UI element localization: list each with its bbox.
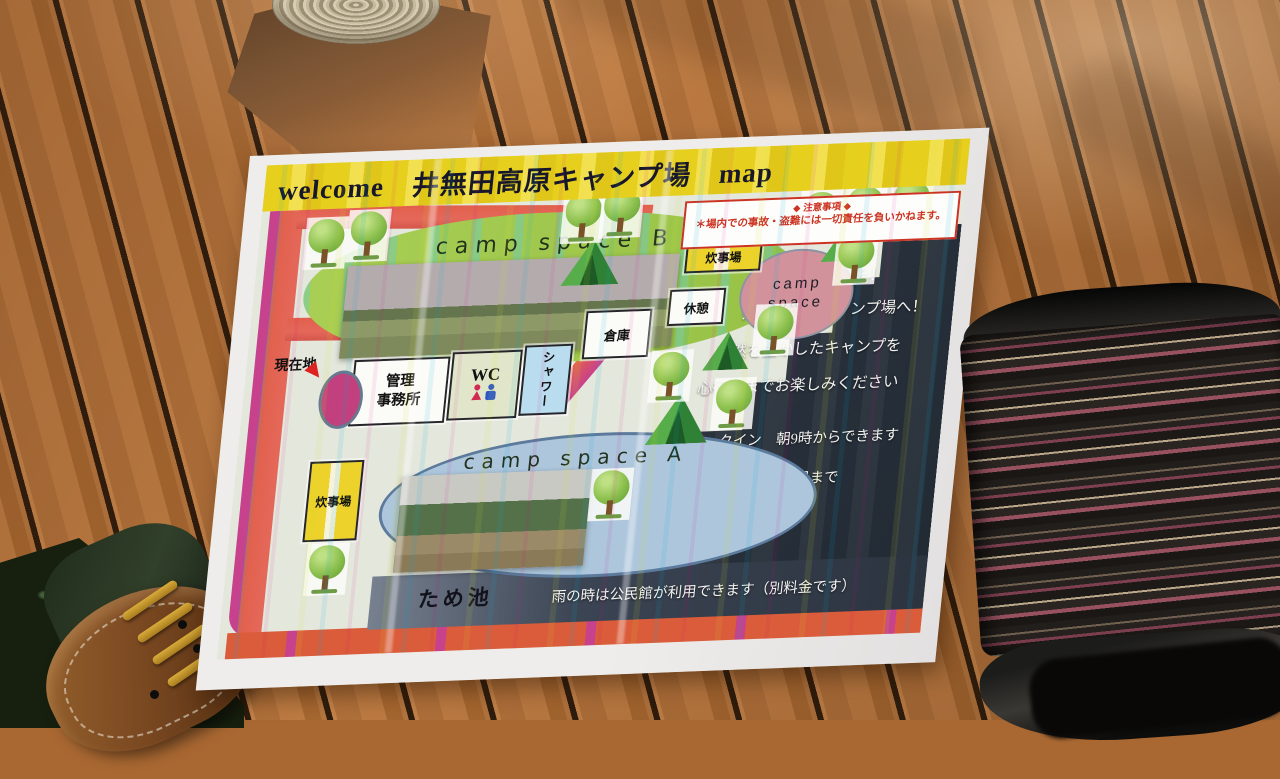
tree-icon xyxy=(647,349,694,403)
warehouse-box: 倉庫 xyxy=(582,309,653,360)
camp-space-a-photo xyxy=(393,469,593,573)
tree-icon xyxy=(751,303,798,357)
female-icon xyxy=(471,384,483,400)
camp-map-paper: camp space B ため池 雨の時は公民館が利用できます（別料金です） よ… xyxy=(196,128,990,691)
tree-icon xyxy=(710,377,757,431)
cooking-area-lower-box: 炊事場 xyxy=(302,460,364,542)
pond-label: ため池 xyxy=(416,581,494,614)
rest-box: 休憩 xyxy=(667,288,727,326)
wc-label: WC xyxy=(470,365,501,383)
tree-icon xyxy=(587,467,634,521)
boot-eyelet xyxy=(178,620,187,629)
camp-circle-label-1: camp xyxy=(772,274,823,295)
male-icon xyxy=(485,383,497,399)
tree-icon xyxy=(303,542,350,596)
wc-box: WC xyxy=(446,350,523,421)
shower-box: シャワー xyxy=(518,344,573,416)
boot-eyelet xyxy=(150,690,159,699)
road-left xyxy=(227,210,304,637)
map-canvas: camp space B ため池 雨の時は公民館が利用できます（別料金です） よ… xyxy=(217,138,971,659)
office-box: 管理 事務所 xyxy=(348,356,451,426)
tree-icon xyxy=(345,209,392,263)
tree-icon xyxy=(302,216,349,270)
bag-striped-body xyxy=(959,313,1280,657)
map-title: welcome 井無田高原キャンプ場 map xyxy=(263,149,776,208)
